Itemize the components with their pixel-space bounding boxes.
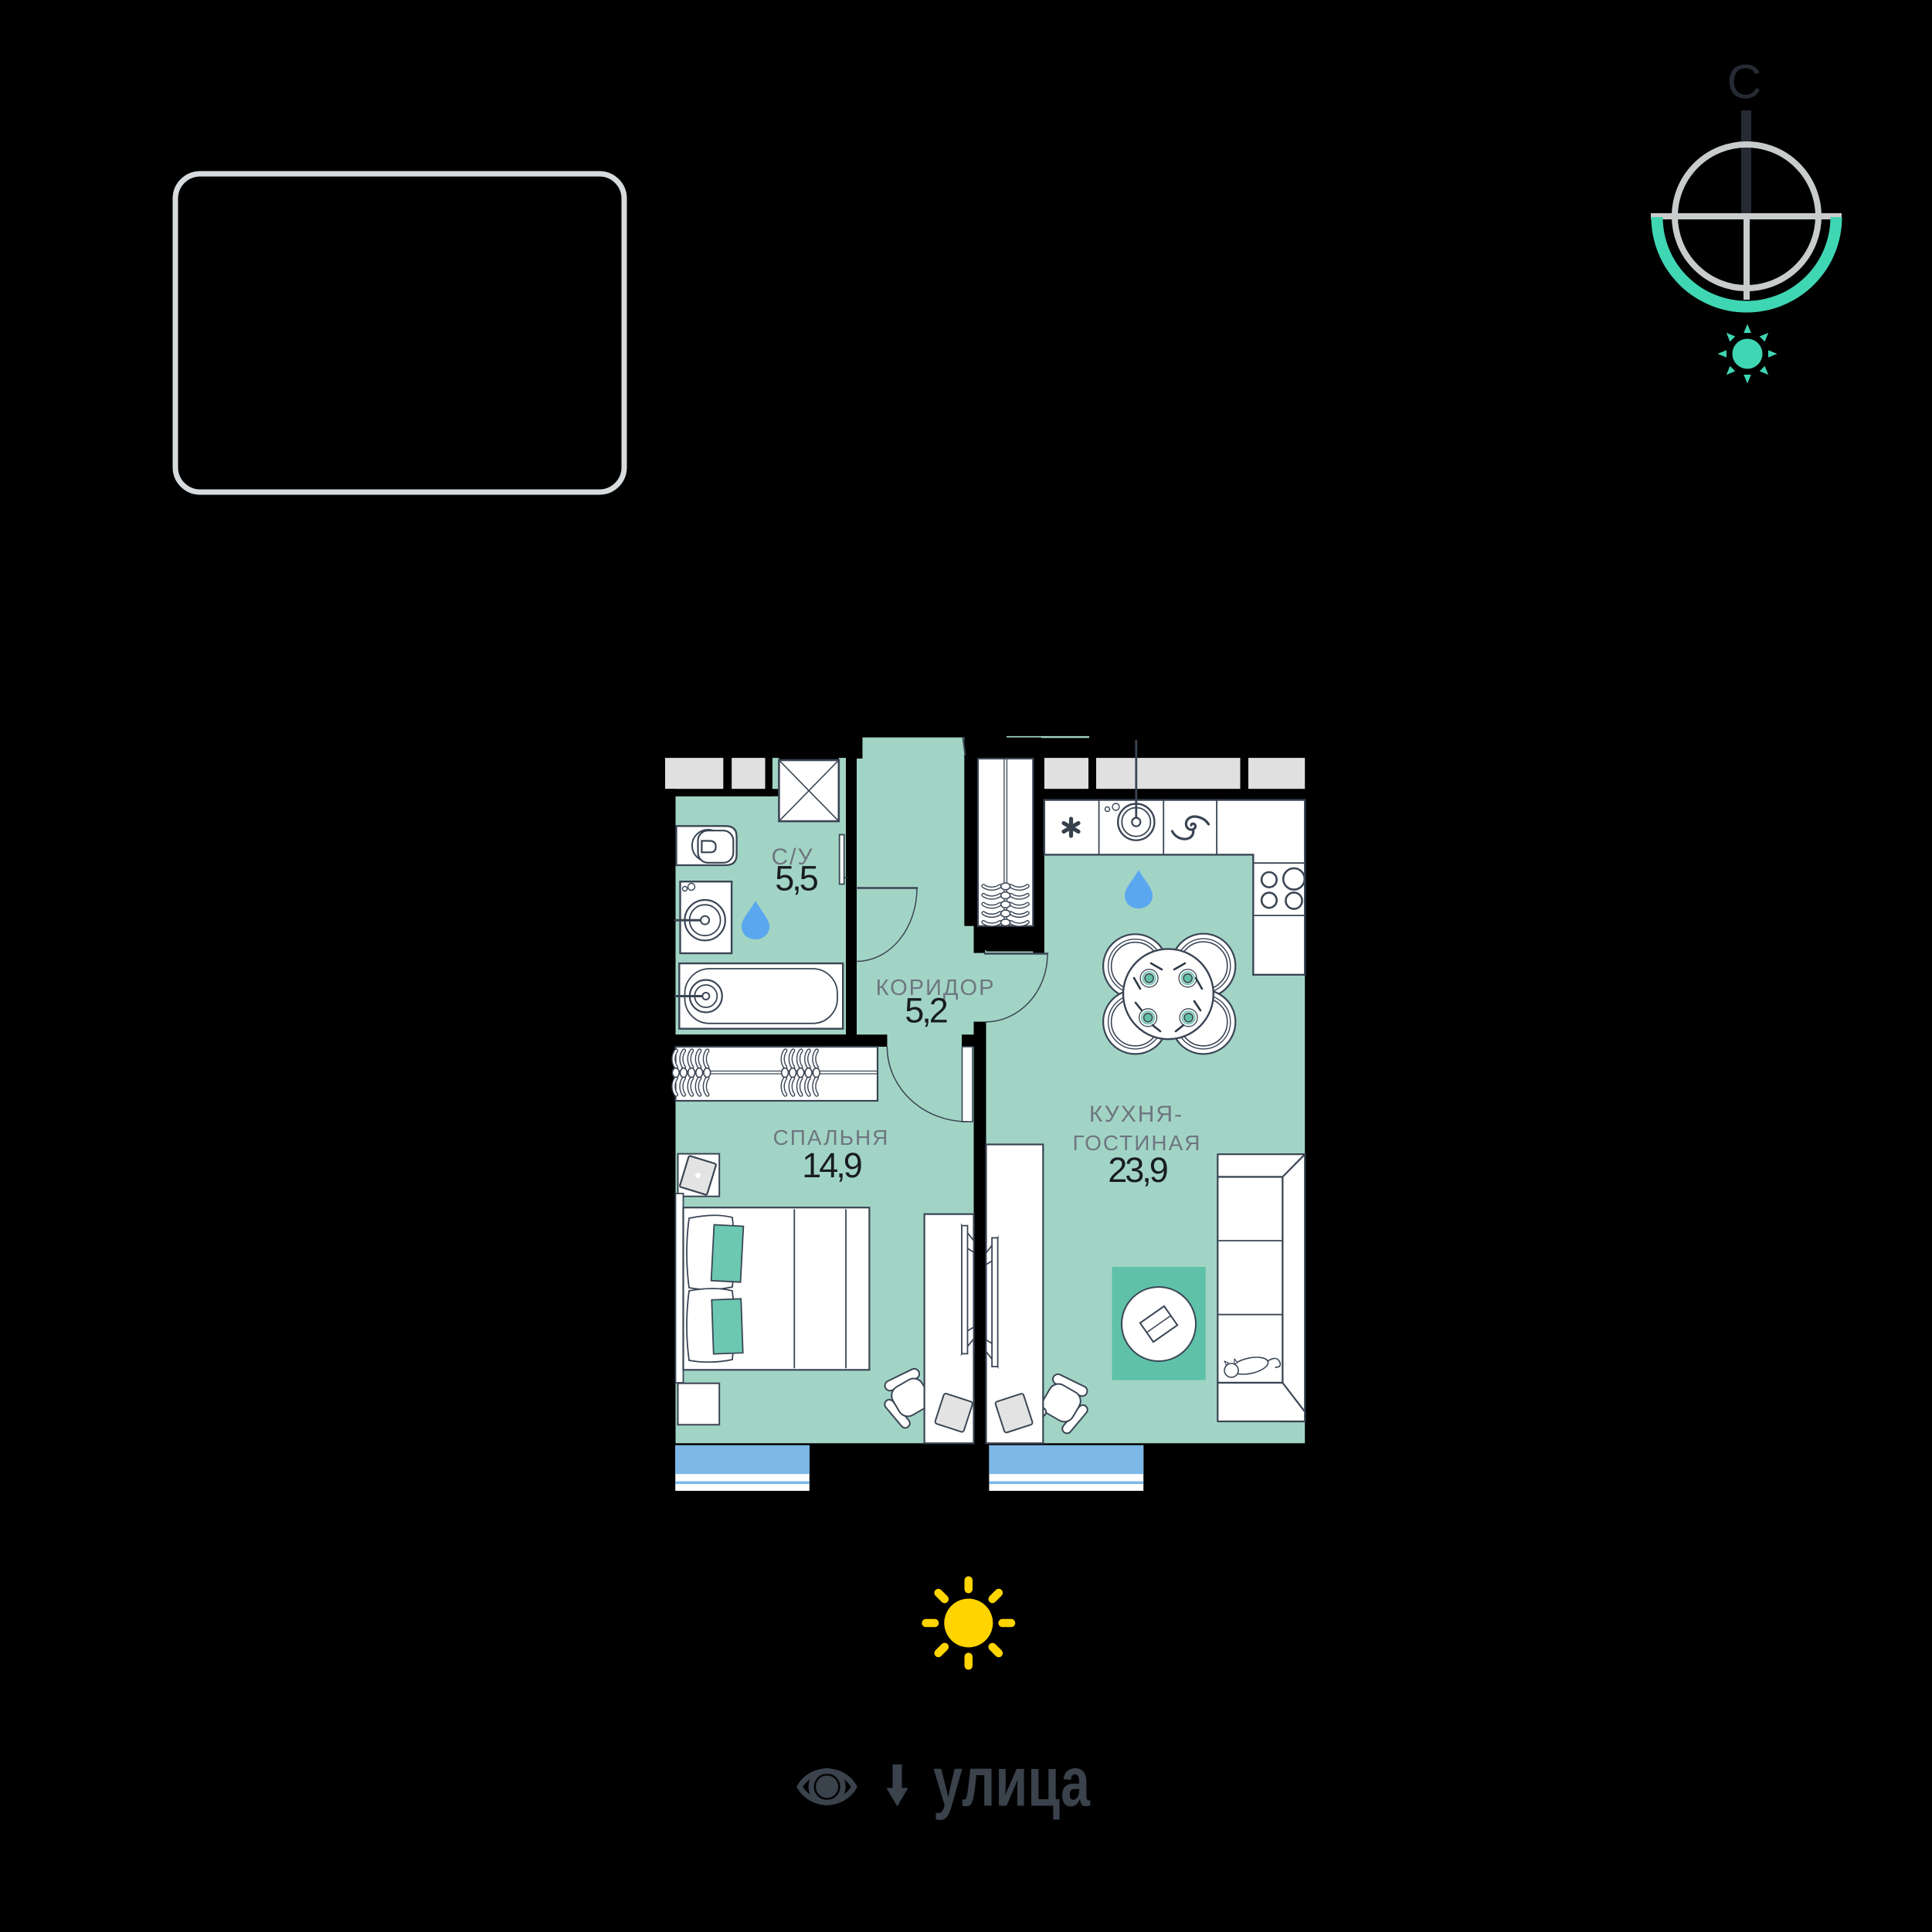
svg-text:5,2: 5,2 xyxy=(905,991,947,1031)
svg-text:С: С xyxy=(1727,56,1762,109)
svg-text:5,5: 5,5 xyxy=(775,859,818,898)
svg-text:КУХНЯ-: КУХНЯ- xyxy=(1089,1102,1183,1127)
svg-text:14,9: 14,9 xyxy=(802,1146,861,1185)
svg-text:23,9: 23,9 xyxy=(1108,1150,1167,1190)
svg-text:улица: улица xyxy=(933,1744,1091,1821)
